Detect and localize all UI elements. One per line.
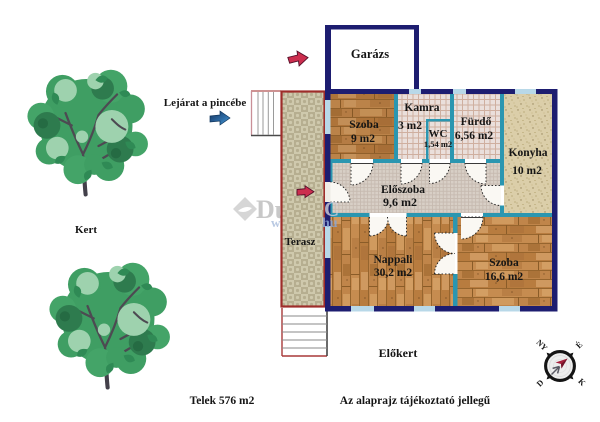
svg-text:Fürdő: Fürdő: [461, 116, 492, 128]
svg-text:Szoba: Szoba: [349, 119, 379, 131]
svg-text:16,6 m2: 16,6 m2: [485, 271, 524, 283]
svg-text:1,54 m2: 1,54 m2: [424, 139, 452, 149]
svg-text:Kamra: Kamra: [404, 102, 439, 114]
svg-text:Garázs: Garázs: [351, 47, 389, 61]
svg-text:Szoba: Szoba: [489, 257, 519, 269]
svg-text:6,56 m2: 6,56 m2: [455, 130, 494, 142]
svg-text:Előkert: Előkert: [379, 346, 418, 360]
svg-text:Kert: Kert: [75, 224, 97, 236]
svg-text:9,6 m2: 9,6 m2: [383, 195, 417, 209]
svg-text:Konyha: Konyha: [509, 147, 548, 159]
svg-text:9 m2: 9 m2: [351, 133, 375, 145]
svg-text:Lejárat a pincébe: Lejárat a pincébe: [164, 97, 247, 109]
svg-text:10 m2: 10 m2: [512, 165, 542, 177]
svg-text:Az alaprajz tájékoztató jelleg: Az alaprajz tájékoztató jellegű: [340, 395, 491, 407]
svg-text:Nappali: Nappali: [374, 254, 414, 266]
svg-text:Telek 576 m2: Telek 576 m2: [190, 395, 255, 407]
svg-text:Terasz: Terasz: [285, 236, 316, 248]
svg-text:hu: hu: [322, 216, 338, 231]
svg-text:30,2 m2: 30,2 m2: [374, 267, 413, 279]
svg-text:3 m2: 3 m2: [398, 120, 422, 132]
svg-text:w: w: [271, 215, 281, 230]
